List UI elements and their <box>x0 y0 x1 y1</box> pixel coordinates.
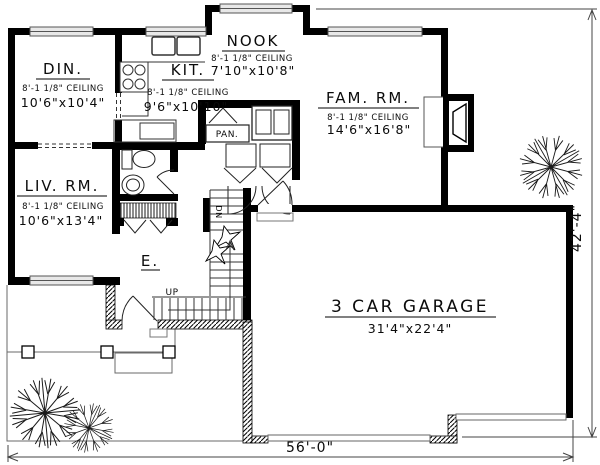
wall-family-right-upper <box>441 28 448 102</box>
dimension-right <box>316 9 597 437</box>
dining-room-label: DIN. <box>43 60 83 78</box>
porch-column <box>163 346 175 358</box>
stairs-lower-run <box>152 297 246 320</box>
pantry-label: PAN. <box>216 130 239 140</box>
wall-closet-bottom-left <box>112 218 124 226</box>
wall-left <box>8 28 15 285</box>
dining-ceiling-label: 8'-1 1/8" CEILING <box>22 84 104 94</box>
living-ceiling-label: 8'-1 1/8" CEILING <box>22 202 104 212</box>
kitchen-window <box>146 27 206 36</box>
wall-bath-right <box>170 150 178 172</box>
wall-garage-step-horizontal <box>430 436 457 443</box>
fireplace <box>424 94 474 152</box>
bathroom-fixtures <box>122 150 155 195</box>
washer <box>226 144 256 167</box>
nook-window <box>220 4 292 13</box>
nook-label: NOOK <box>227 32 280 50</box>
wall-entry-left <box>106 285 115 325</box>
dryer <box>260 144 290 167</box>
porch-column <box>22 346 34 358</box>
toilet-tank <box>122 150 132 169</box>
dining-living-opening <box>38 144 92 148</box>
kitchen-sink <box>152 37 200 55</box>
living-size-label: 10'6"x13'4" <box>19 213 104 228</box>
wall-entry-front-left <box>106 320 122 329</box>
family-room-label: FAM. RM. <box>326 89 410 107</box>
nook-size-label: 7'10"x10'8" <box>211 63 296 78</box>
wall-bath-top <box>112 142 205 150</box>
floor-plan-canvas: DIN. 8'-1 1/8" CEILING 10'6"x10'4" KIT. … <box>0 0 600 465</box>
dining-window <box>30 27 93 36</box>
fireplace-hearth <box>424 97 444 147</box>
garage-size-label: 31'4"x22'4" <box>368 321 453 336</box>
entry-closet <box>120 203 176 218</box>
bath-door <box>157 170 174 194</box>
porch-column <box>101 346 113 358</box>
refrigerator-door-left <box>256 110 271 134</box>
refrigerator-door-right <box>274 110 289 134</box>
wall-bath-bottom <box>112 194 178 201</box>
kitchen-size-label: 9'6"x10'10" <box>144 99 229 114</box>
closet-rod-hatch <box>120 203 176 218</box>
wall-garage-left-return <box>252 436 268 443</box>
floor-plan: DIN. 8'-1 1/8" CEILING 10'6"x10'4" KIT. … <box>0 0 600 465</box>
garage-door-right <box>456 414 566 420</box>
stairs-upper-run <box>206 190 243 296</box>
tree <box>512 128 591 207</box>
wall-family-left <box>292 108 300 180</box>
dimension-depth-label: 42'-4" <box>569 204 585 252</box>
wall-stair-left <box>203 198 210 232</box>
labels: DIN. 8'-1 1/8" CEILING 10'6"x10'4" KIT. … <box>17 32 585 456</box>
wall-garage-top <box>243 205 573 212</box>
dimension-width-label: 56'-0" <box>286 440 334 456</box>
kitchen-label: KIT. <box>171 61 205 79</box>
front-door-threshold <box>150 329 167 337</box>
entry-label: E. <box>141 252 159 270</box>
dining-size-label: 10'6"x10'4" <box>21 95 106 110</box>
entry-closet-bifold <box>124 220 172 233</box>
bath-sink-basin <box>127 179 140 191</box>
living-room-label: LIV. RM. <box>25 177 100 195</box>
dining-kitchen-opening <box>115 93 122 120</box>
garage-label: 3 CAR GARAGE <box>331 297 489 317</box>
living-window <box>30 276 93 285</box>
dimensions <box>8 9 597 462</box>
family-window <box>328 27 422 36</box>
family-size-label: 14'6"x16'8" <box>327 122 412 137</box>
wall-din-liv-left <box>8 142 38 149</box>
stairs-down-label: DN <box>214 205 223 218</box>
laundry-bifold <box>224 168 292 183</box>
kitchen-ceiling-label: 8'-1 1/8" CEILING <box>147 88 229 98</box>
front-door <box>122 296 167 337</box>
wall-garage-left <box>243 322 252 443</box>
kitchen-island <box>140 123 174 139</box>
wall-family-right-lower <box>441 146 448 212</box>
wall-entry-front-right <box>158 320 252 329</box>
toilet-bowl <box>133 151 155 168</box>
site-lines <box>7 285 243 441</box>
stairs-up-label: UP <box>165 288 178 298</box>
